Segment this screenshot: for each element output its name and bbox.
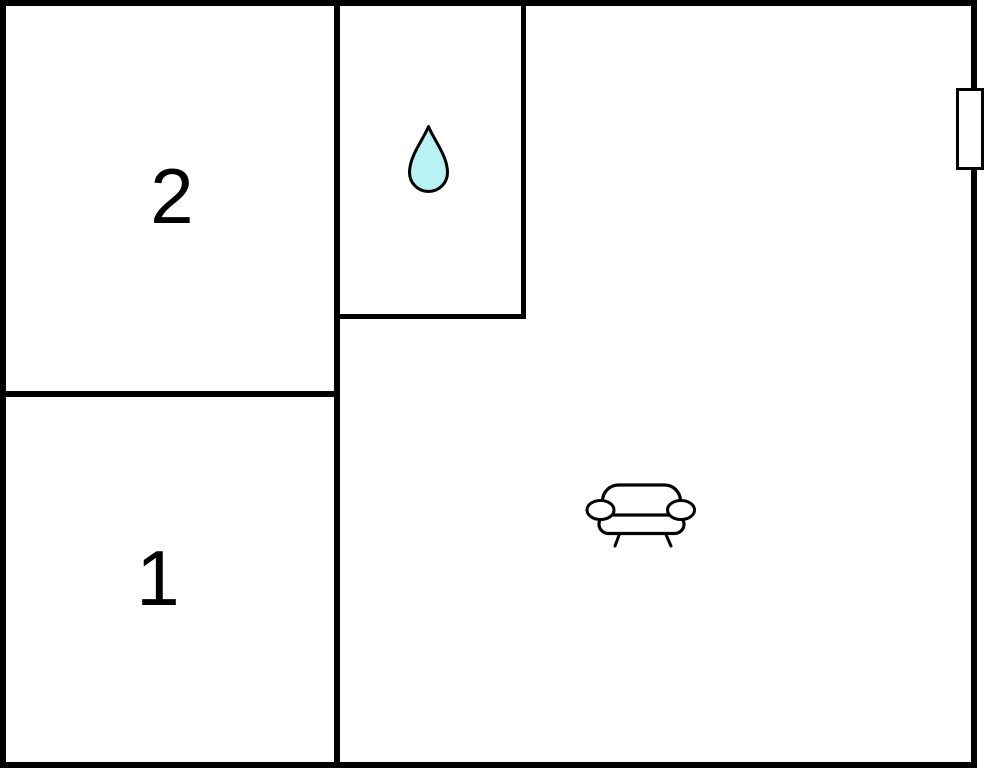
room-1-label: 1 [136,539,179,617]
floor-plan: 2 1 [0,0,986,768]
sofa-icon [584,480,698,548]
window-marker [956,88,984,170]
interior-wall-bathroom-right [521,0,526,319]
water-drop-icon [406,123,451,196]
room-2-label: 2 [150,157,193,235]
water-drop-shape [410,127,448,192]
sofa-shape [587,485,695,546]
